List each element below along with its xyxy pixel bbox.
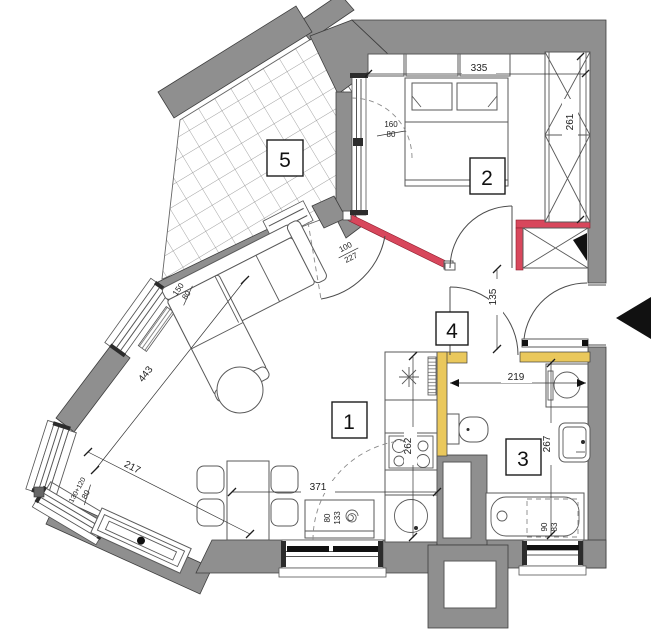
dim-hall: 135 [488,288,499,305]
round-table [217,367,263,413]
room-label-bedroom: 2 [481,167,493,190]
bathtub [486,493,584,540]
wall-kitchen-yellow-side [436,352,447,456]
chair [197,499,224,526]
svg-text:80: 80 [387,130,396,139]
svg-text:83: 83 [550,522,559,531]
svg-text:133: 133 [333,511,342,525]
room-label-bathroom: 3 [517,448,529,471]
dim-living-width: 371 [310,482,327,493]
label-red-wall: 100 227 [331,235,365,267]
svg-text:90: 90 [540,522,549,531]
svg-text:80: 80 [323,513,332,522]
wall-red-diagonal [347,214,448,268]
shaft-opening [444,561,496,608]
dim-wardrobe: 261 [565,113,576,130]
window-corner-a [26,419,78,499]
entrance-door [522,283,588,347]
chair [197,466,224,493]
pillow [412,83,452,110]
window-bedroom [350,73,368,215]
entrance-opening [588,284,606,346]
room-label-hall: 4 [446,320,458,343]
window-living-bottom [279,540,386,577]
dining-table [227,461,269,540]
chair [271,499,298,526]
label-corner-window: 130+120 80 [68,477,96,509]
window-bathroom [519,540,586,575]
entrance-arrow-icon [616,297,651,339]
shelf [368,54,404,76]
dim-kitchen: 262 [403,437,414,454]
label-bath-window: 90 83 [540,522,559,531]
pillow [457,83,497,110]
room-label-balcony: 5 [279,149,291,172]
floor-plan: 335 261 443 217 371 135 262 219 267 [0,0,670,640]
shelf [406,54,458,76]
vent-icon [399,367,419,387]
dim-bath-width: 219 [508,372,525,383]
dining-set [197,461,298,540]
dim-bedroom-width: 335 [471,63,488,74]
washbasin [559,423,590,462]
svg-text:160: 160 [384,120,398,129]
radiator-kitchen [428,357,436,395]
wall-bedroom-left [336,92,352,218]
toilet [447,414,488,444]
corner-joint [34,487,44,497]
duct-opening [443,462,471,538]
hall-cabinet [523,228,588,268]
dim-tv-wall: 217 [122,459,142,476]
chair [271,466,298,493]
bedroom-door [445,206,512,270]
living-furniture [91,219,413,573]
room-label-living: 1 [343,411,355,434]
dim-bath-depth: 267 [542,435,553,452]
washing-machine [546,364,588,407]
dim-living-diagonal: 443 [137,364,156,384]
wall-right-lower [588,347,606,568]
wall-left-bend [56,344,130,432]
wall-red-l-vertical [516,228,523,270]
wall-bath-yellow-top [520,352,590,362]
